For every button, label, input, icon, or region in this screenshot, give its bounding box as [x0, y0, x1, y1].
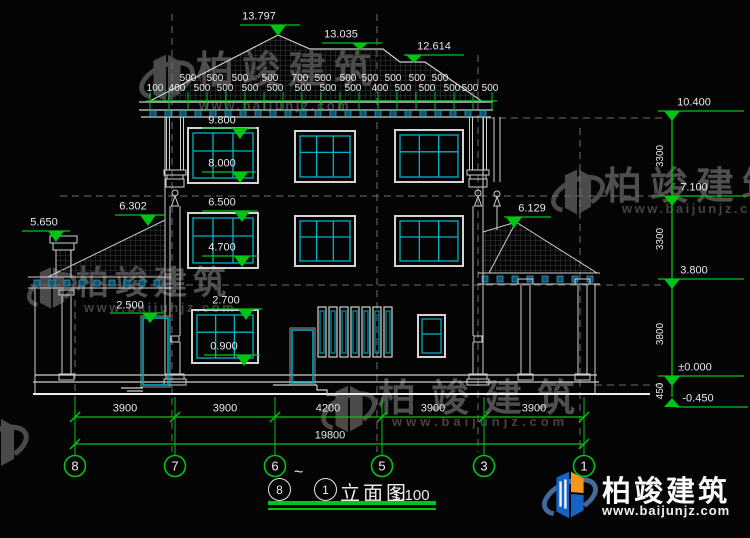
eave-dim-label: 500 [395, 84, 412, 94]
elevation-drawing-canvas: 柏竣建筑 www.baijunjz.com 柏竣建筑 www.baijunjz.… [0, 0, 750, 538]
level-label: 2.700 [212, 296, 240, 307]
level-label: -0.450 [682, 394, 713, 405]
title-axis-from-bubble: 8 [268, 478, 291, 501]
grid-bubble-label: 7 [171, 460, 178, 473]
grid-bubble-label: 5 [378, 460, 385, 473]
level-label: 9.800 [208, 116, 236, 127]
grid-bubble-label: 1 [580, 460, 587, 473]
level-label: 6.302 [119, 202, 147, 213]
axis-dim-label: 3900 [213, 404, 237, 415]
eave-dim-label: 500 [194, 84, 211, 94]
eave-dim-label: 500 [320, 84, 337, 94]
eave-dim-label: 500 [267, 84, 284, 94]
level-label: 13.035 [324, 30, 358, 41]
total-dim-label: 19800 [315, 431, 346, 442]
level-label: 13.797 [242, 12, 276, 23]
level-label: 4.700 [208, 243, 236, 254]
level-label: 5.650 [30, 218, 58, 229]
level-label: 12.614 [417, 42, 451, 53]
eave-dim-label: 100 [147, 84, 164, 94]
level-label: 0.900 [210, 342, 238, 353]
title-axis-to: 1 [322, 483, 329, 497]
level-label: ±0.000 [678, 363, 712, 374]
eave-dim-label: 500 [419, 84, 436, 94]
title-axis-to-bubble: 1 [314, 478, 337, 501]
title-underline-thin [268, 508, 436, 510]
axis-dim-label: 3900 [522, 404, 546, 415]
brand-logo-icon [540, 462, 600, 528]
grid-bubble-label: 6 [271, 460, 278, 473]
axis-dim-label: 4200 [316, 404, 340, 415]
level-label: 3.800 [680, 266, 708, 277]
grid-bubble-label: 8 [71, 460, 78, 473]
level-label: 10.400 [677, 98, 711, 109]
level-label: 6.500 [208, 198, 236, 209]
eave-dim-label: 400 [169, 84, 186, 94]
right-segment-dim: 3300 [656, 228, 666, 250]
right-segment-dim: 450 [656, 383, 666, 400]
title-axis-from: 8 [276, 483, 283, 497]
level-label: 8.000 [208, 159, 236, 170]
level-label: 2.500 [116, 301, 144, 312]
axis-dim-label: 3900 [421, 404, 445, 415]
right-segment-dim: 3800 [656, 323, 666, 345]
grid-bubble-label: 3 [480, 460, 487, 473]
right-segment-dim: 3300 [656, 145, 666, 167]
eave-dim-label: 500 [217, 84, 234, 94]
eave-dim-label: 500 [482, 84, 499, 94]
title-underline-thick [268, 501, 436, 505]
eave-dim-label: 400 [372, 84, 389, 94]
level-label: 7.100 [680, 183, 708, 194]
eave-dim-label: 500 [444, 84, 461, 94]
brand-logo-url: www.baijunjz.com [602, 503, 730, 518]
eave-dim-label: 500 [462, 84, 479, 94]
title-tilde: ~ [294, 464, 303, 482]
eave-dim-label: 500 [345, 84, 362, 94]
eave-dim-label: 500 [242, 84, 259, 94]
eave-dim-label: 500 [295, 84, 312, 94]
axis-dim-label: 3900 [113, 404, 137, 415]
level-label: 6.129 [518, 204, 546, 215]
